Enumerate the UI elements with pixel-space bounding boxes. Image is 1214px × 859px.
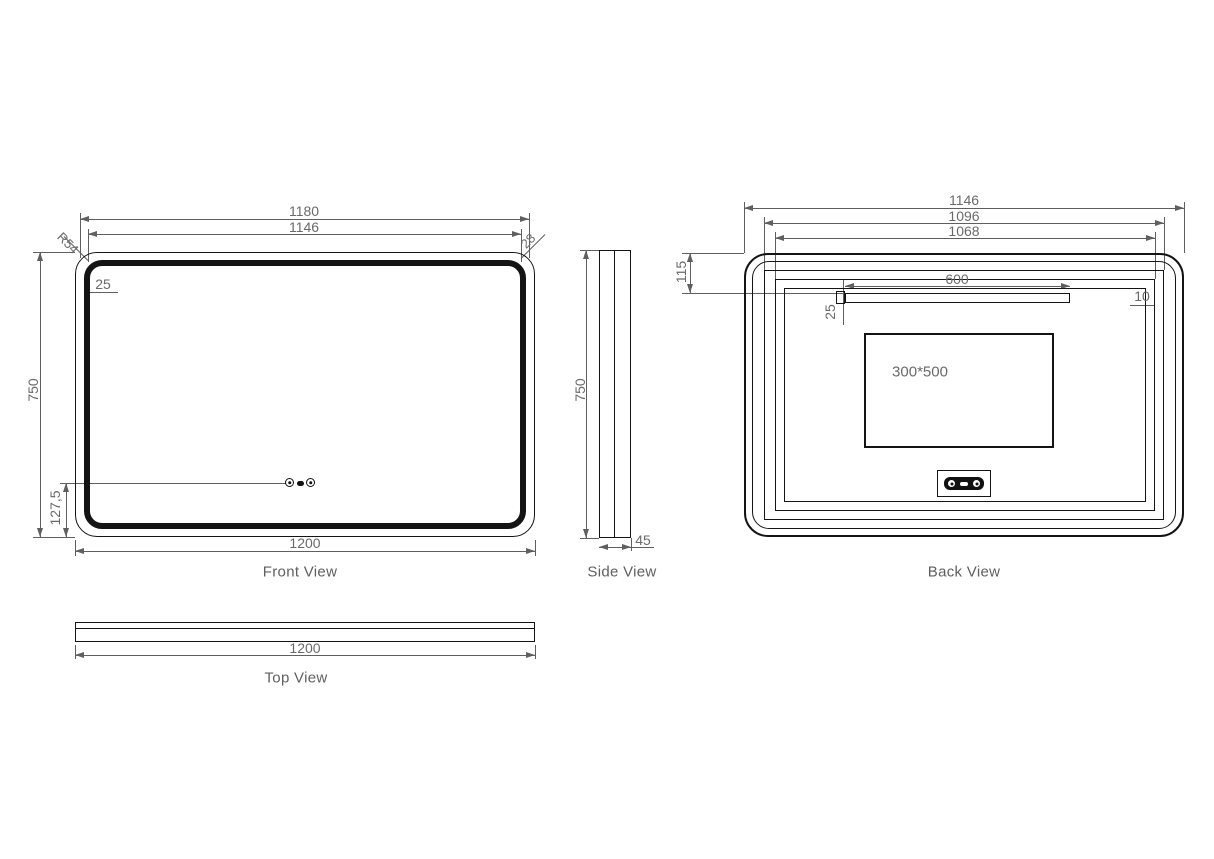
arrowhead [512,231,521,237]
dim-label-1200-front: 1200 [289,536,320,550]
front-led-band [84,260,526,529]
arrowhead [88,231,97,237]
dim-label-25-bracket: 25 [823,304,837,320]
dim-label-1068: 1068 [948,224,979,238]
touch-sensor-oval-icon [297,481,304,486]
arrowhead [744,205,753,211]
extension-line [1184,202,1185,253]
dim-label-1146-back: 1146 [949,193,979,207]
arrowhead [583,250,589,259]
hanging-bracket-end [836,291,845,304]
sensor-dot-icon [973,480,980,487]
top-profile-inner-line [75,628,535,629]
dim-label-600: 600 [945,272,968,286]
sensor-dot-icon [948,480,955,487]
dim-label-1200-top: 1200 [289,641,320,655]
arrowhead [764,220,773,226]
arrowhead [75,548,84,554]
arrowhead [80,216,89,222]
sensor-oval-icon [960,482,968,486]
extension-line [580,250,599,251]
front-view-title: Front View [263,565,337,580]
dim-label-115: 115 [674,261,688,283]
technical-drawing-canvas: 1180 1146 R54 28 25 750 127,5 1200 Front… [0,0,1214,859]
dim-label-1146-front: 1146 [289,220,319,234]
dim-line-1200-front [75,551,535,552]
dim-label-750-side: 750 [573,378,587,401]
arrowhead [583,529,589,538]
touch-sensor-button-icon [306,478,315,487]
extension-line [75,540,76,556]
junction-box [864,333,1054,448]
dim-label-frame-inset: 25 [95,277,111,291]
arrowhead [63,528,69,537]
top-profile-outline [75,622,535,642]
extension-line [744,202,745,253]
extension-line [535,645,536,659]
junction-box-label: 300*500 [892,365,948,380]
extension-line [535,540,536,556]
arrowhead [1155,220,1164,226]
dim-label-45: 45 [635,533,651,547]
arrowhead [526,548,535,554]
arrowhead [687,284,693,293]
dim-label-1180: 1180 [289,204,319,218]
arrowhead [622,544,631,550]
arrowhead [37,528,43,537]
extension-line [631,538,632,551]
extension-line [33,537,75,538]
extension-line [580,538,599,539]
extension-line [75,645,76,659]
dim-label-750-front: 750 [26,378,40,401]
arrowhead [1175,205,1184,211]
top-view-title: Top View [265,671,328,686]
arrowhead [37,252,43,261]
arrowhead [63,483,69,492]
touch-sensor-button-icon [285,478,294,487]
dim-label-127-5: 127,5 [48,490,62,525]
sensor-module-bar [944,477,984,490]
arrowhead [526,652,535,658]
arrowhead [1146,235,1155,241]
back-view-title: Back View [928,565,1000,580]
dim-label-10: 10 [1134,289,1150,303]
hanging-bracket-bar [845,293,1070,303]
arrowhead [520,216,529,222]
side-view-title: Side View [587,565,656,580]
extension-line [682,253,744,254]
side-profile-inner-line [614,250,615,538]
dim-label-1096: 1096 [948,209,979,223]
arrowhead [75,652,84,658]
arrowhead [599,544,608,550]
arrowhead [775,235,784,241]
